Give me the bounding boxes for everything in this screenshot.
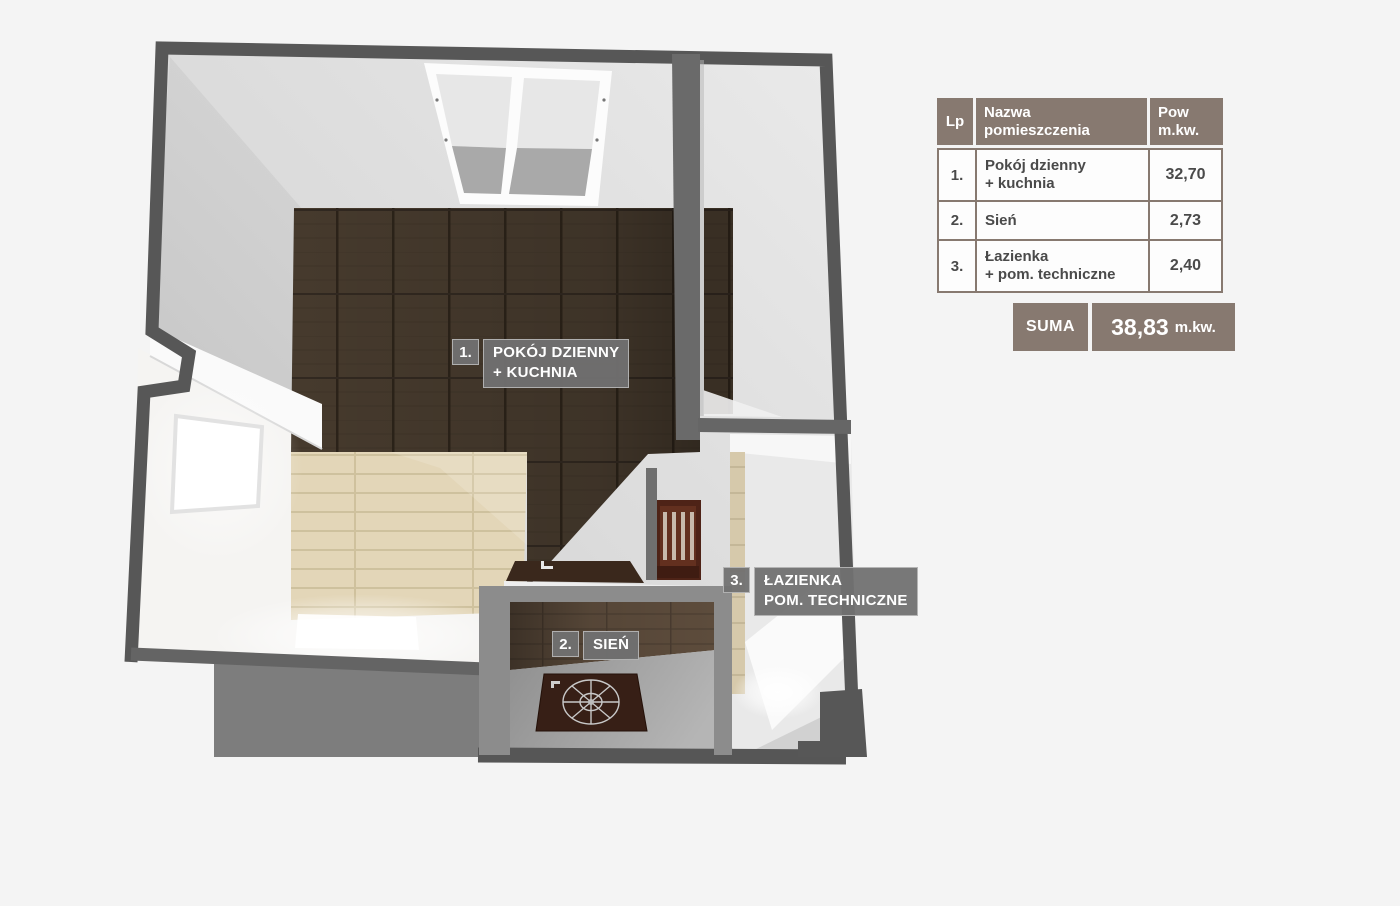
- room-name-line: + kuchnia: [985, 175, 1140, 194]
- room-name-line: Sień: [985, 212, 1140, 231]
- header-area: Pow m.kw.: [1150, 98, 1223, 145]
- sum-unit: m.kw.: [1175, 319, 1216, 336]
- lower-slab: [214, 661, 486, 757]
- plan-label-line: POM. TECHNICZNE: [764, 591, 908, 611]
- plan-label-text: SIEŃ: [583, 631, 639, 660]
- room-name-line: + pom. techniczne: [985, 266, 1140, 285]
- plan-label-text: ŁAZIENKA POM. TECHNICZNE: [754, 567, 918, 616]
- table-row: 1. Pokój dzienny + kuchnia 32,70: [939, 150, 1221, 202]
- cell-lp: 1.: [939, 150, 977, 200]
- header-line: Pow: [1158, 104, 1215, 122]
- plan-label-living-room: 1. POKÓJ DZIENNY + KUCHNIA: [452, 339, 629, 388]
- cell-lp: 2.: [939, 202, 977, 239]
- plan-label-text: POKÓJ DZIENNY + KUCHNIA: [483, 339, 629, 388]
- cell-area: 2,73: [1150, 202, 1221, 239]
- room-table: Lp Nazwa pomieszczenia Pow m.kw. 1. Pokó…: [937, 98, 1223, 293]
- plan-label-number: 1.: [452, 339, 479, 365]
- table-row: 3. Łazienka + pom. techniczne 2,40: [939, 241, 1221, 291]
- sum-value: 38,83: [1111, 314, 1169, 341]
- plan-label-hall: 2. SIEŃ: [552, 631, 639, 660]
- plan-label-number: 2.: [552, 631, 579, 657]
- room-name-line: Pokój dzienny: [985, 157, 1140, 176]
- cell-room-name: Sień: [977, 202, 1150, 239]
- plan-label-line: + KUCHNIA: [493, 363, 619, 383]
- entry-mat-compass: [536, 674, 647, 731]
- cell-area: 32,70: [1150, 150, 1221, 200]
- cell-area: 2,40: [1150, 241, 1221, 291]
- sum-value-box: 38,83 m.kw.: [1092, 303, 1235, 351]
- header-line: m.kw.: [1158, 122, 1215, 140]
- room-table-body: 1. Pokój dzienny + kuchnia 32,70 2. Sień…: [937, 148, 1223, 293]
- header-room-name: Nazwa pomieszczenia: [976, 98, 1147, 145]
- entry-hall: [510, 598, 733, 753]
- cell-room-name: Pokój dzienny + kuchnia: [977, 150, 1150, 200]
- sum-row: SUMA 38,83 m.kw.: [1013, 303, 1235, 351]
- table-row: 2. Sień 2,73: [939, 202, 1221, 241]
- page: 1. POKÓJ DZIENNY + KUCHNIA 2. SIEŃ 3. ŁA…: [0, 0, 1400, 906]
- plan-label-line: ŁAZIENKA: [764, 571, 908, 591]
- cell-room-name: Łazienka + pom. techniczne: [977, 241, 1150, 291]
- header-lp: Lp: [937, 98, 973, 145]
- plan-label-line: POKÓJ DZIENNY: [493, 343, 619, 363]
- room-name-line: Łazienka: [985, 248, 1140, 267]
- header-line: pomieszczenia: [984, 122, 1139, 140]
- sum-label: SUMA: [1013, 303, 1088, 351]
- wood-door: [655, 500, 701, 580]
- cell-lp: 3.: [939, 241, 977, 291]
- plan-label-line: SIEŃ: [593, 635, 629, 655]
- left-window: [133, 373, 303, 563]
- header-line: Nazwa: [984, 104, 1139, 122]
- room-table-header: Lp Nazwa pomieszczenia Pow m.kw.: [937, 98, 1223, 145]
- plan-label-number: 3.: [723, 567, 750, 593]
- plan-label-bathroom: 3. ŁAZIENKA POM. TECHNICZNE: [723, 567, 918, 616]
- corridor-wood-strip: [704, 208, 733, 414]
